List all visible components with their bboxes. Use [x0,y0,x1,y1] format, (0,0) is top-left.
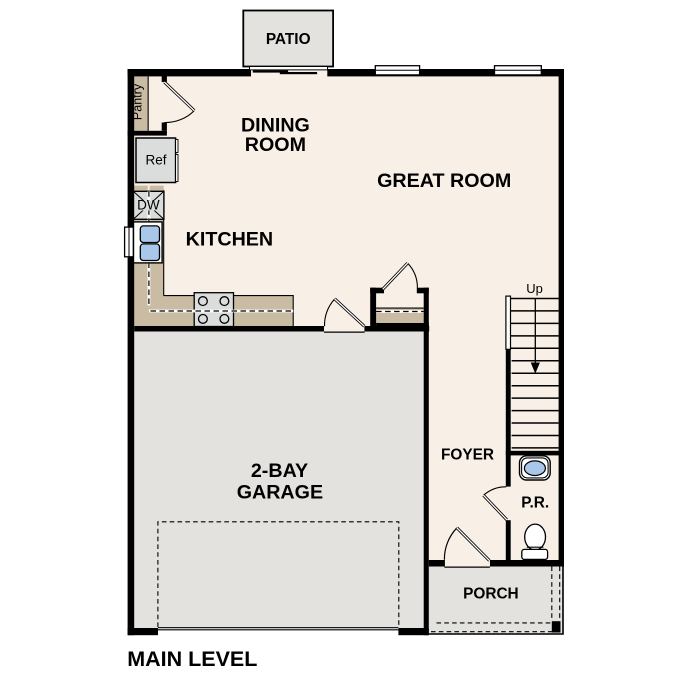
svg-text:PORCH: PORCH [463,586,519,603]
svg-text:Up: Up [526,281,543,296]
svg-text:PATIO: PATIO [266,31,311,48]
svg-text:DW: DW [137,198,160,213]
svg-text:ROOM: ROOM [245,134,306,156]
svg-text:P.R.: P.R. [521,495,549,512]
svg-text:GREAT ROOM: GREAT ROOM [377,170,511,192]
svg-text:2-BAY: 2-BAY [251,460,308,482]
svg-text:KITCHEN: KITCHEN [186,229,274,251]
svg-text:MAIN LEVEL: MAIN LEVEL [127,647,257,671]
svg-text:Pantry: Pantry [131,83,145,120]
svg-text:FOYER: FOYER [441,447,494,464]
svg-text:Ref: Ref [145,152,166,167]
svg-text:GARAGE: GARAGE [237,482,323,504]
